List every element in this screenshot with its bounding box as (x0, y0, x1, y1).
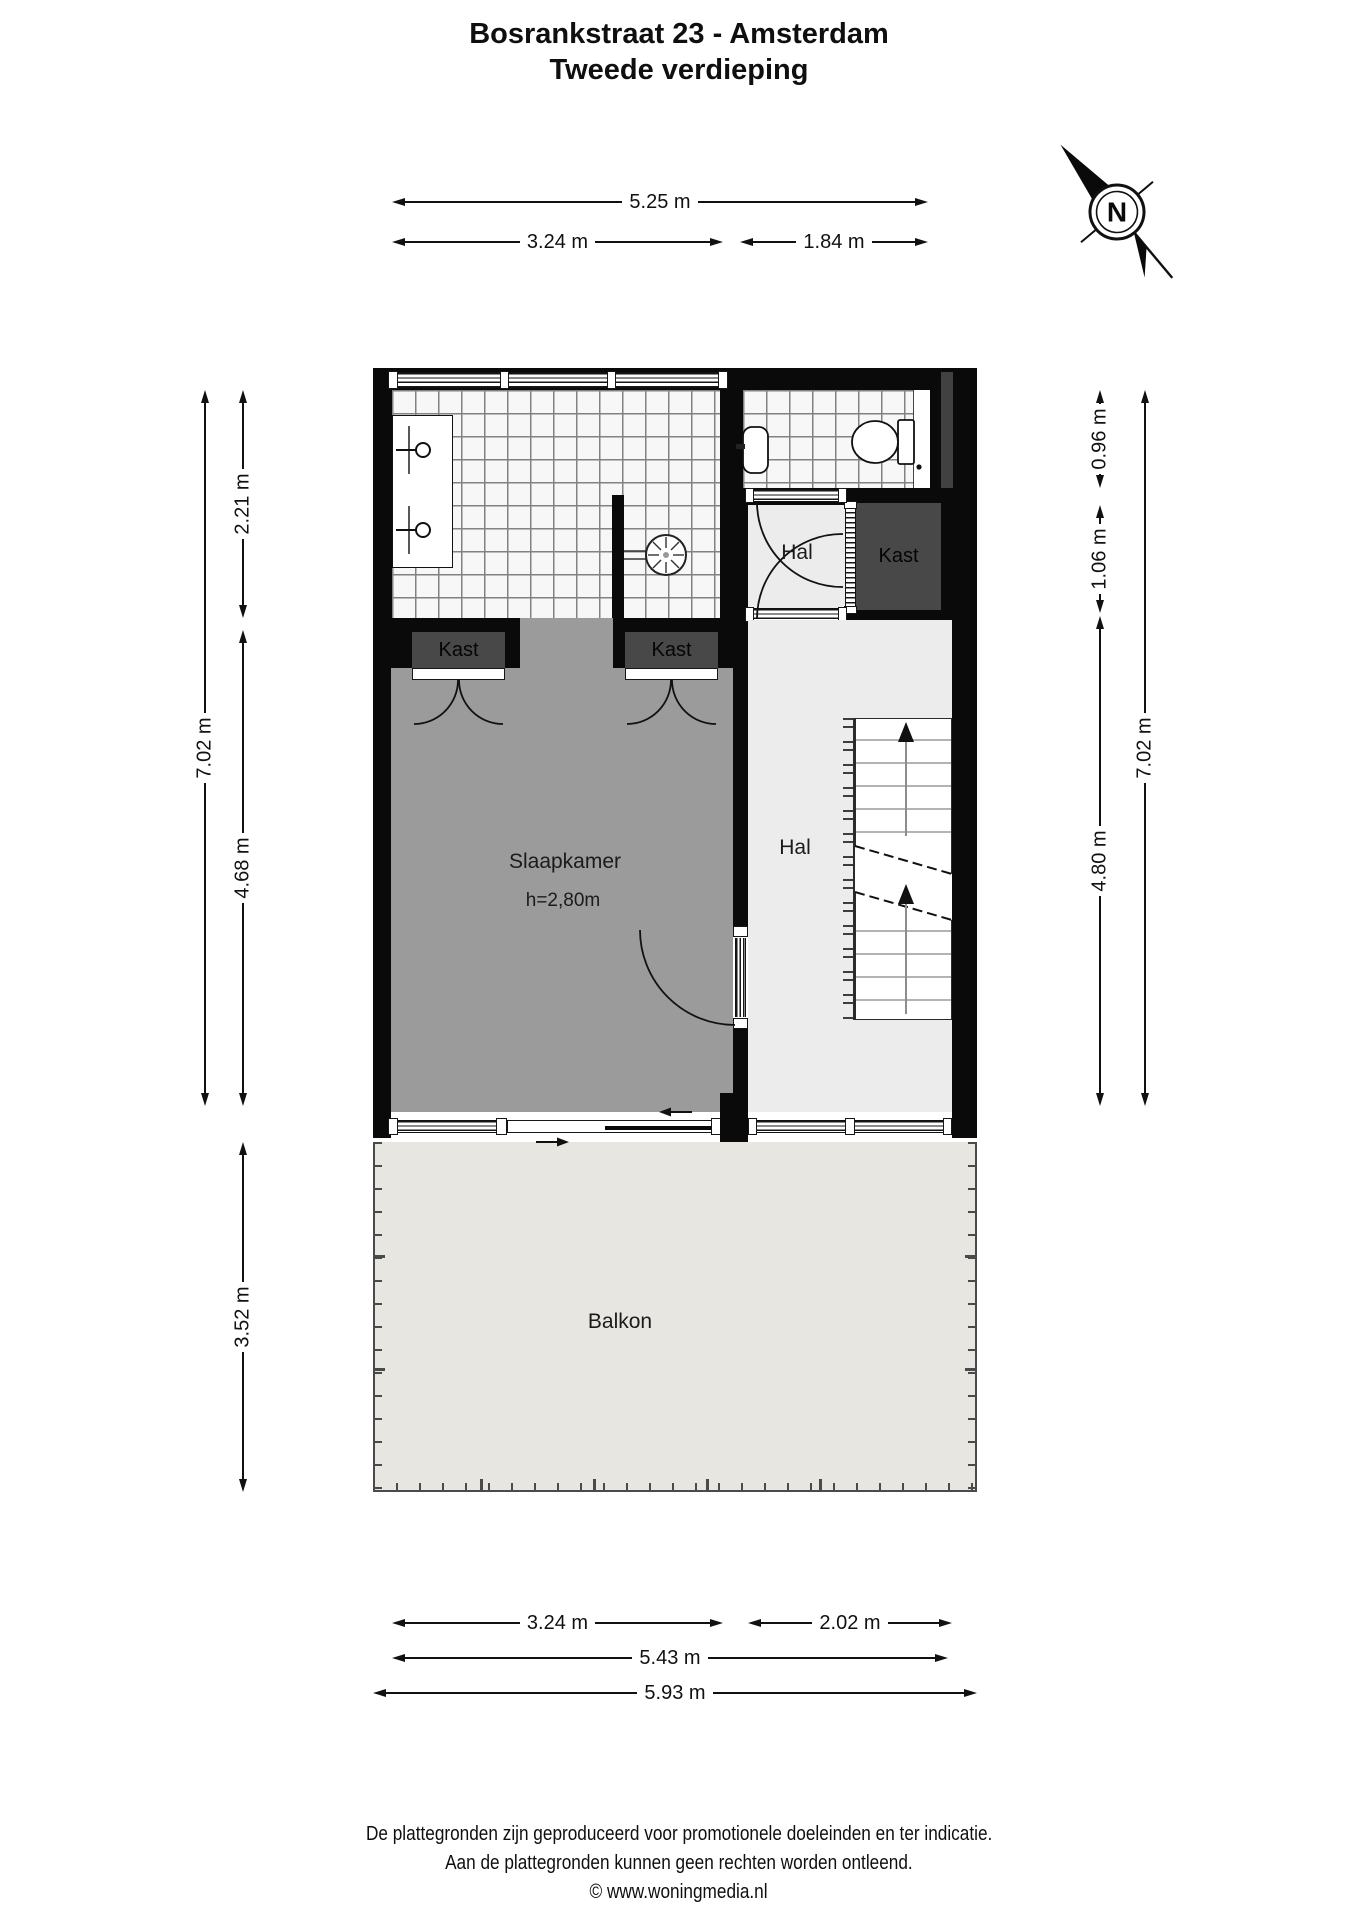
dim-bottom-hall: 2.02 m (748, 1612, 952, 1634)
door-arcs (414, 502, 843, 1025)
dim-left-balcony: 3.52 m (232, 1142, 254, 1492)
dim-top-toilet: 1.84 m (740, 231, 928, 253)
disclaimer-line2: Aan de plattegronden kunnen geen rechten… (445, 1849, 913, 1878)
stair-break (855, 846, 952, 920)
bedroom-ceiling-height: h=2,80m (526, 890, 600, 912)
balcony-label: Balkon (588, 1310, 652, 1334)
slide-arrow-right (536, 1138, 569, 1147)
floorplan-page: Bosrankstraat 23 - Amsterdam Tweede verd… (0, 0, 1358, 1920)
dim-top-bathroom: 3.24 m (392, 231, 723, 253)
copyright: © www.woningmedia.nl (590, 1878, 768, 1907)
slide-arrow-left (659, 1108, 692, 1117)
dim-left-bedroom: 4.68 m (232, 630, 254, 1106)
basin-icon (736, 427, 768, 473)
toilet-icon (852, 420, 922, 470)
dim-right-hall: 4.80 m (1089, 616, 1111, 1106)
disclaimer-line1: De plattegronden zijn geproduceerd voor … (366, 1820, 992, 1849)
dim-top-total: 5.25 m (392, 191, 928, 213)
hall-upper-label: Hal (781, 541, 813, 565)
dim-bottom-total: 5.93 m (373, 1682, 977, 1704)
bedroom-label: Slaapkamer (509, 850, 621, 874)
shower-icon (624, 535, 686, 575)
dim-right-toilet: 0.96 m (1089, 390, 1111, 488)
dim-right-hall-upper: 1.06 m (1089, 505, 1111, 613)
dim-left-bathroom: 2.21 m (232, 390, 254, 618)
sink-icon (396, 506, 430, 554)
dim-right-total: 7.02 m (1134, 390, 1156, 1106)
hall-main-label: Hal (779, 836, 811, 860)
dim-bottom-interior: 5.43 m (392, 1647, 948, 1669)
disclaimer: De plattegronden zijn geproduceerd voor … (0, 1820, 1358, 1907)
dim-left-total: 7.02 m (194, 390, 216, 1106)
dim-bottom-bedroom: 3.24 m (392, 1612, 723, 1634)
sink-icon (396, 426, 430, 474)
